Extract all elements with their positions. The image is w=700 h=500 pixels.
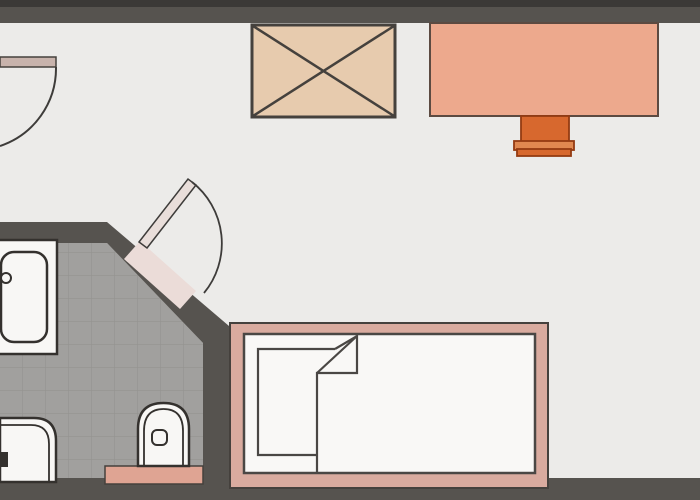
bathroom-bottom-threshold bbox=[105, 466, 203, 484]
entry-door-leaf bbox=[0, 57, 56, 67]
floor-plan bbox=[0, 0, 700, 500]
floor-plan-drawing bbox=[0, 0, 700, 500]
bidet bbox=[0, 418, 56, 482]
bidet-body bbox=[0, 418, 56, 482]
bed bbox=[230, 323, 548, 488]
toilet-flush bbox=[152, 430, 167, 445]
bidet-detail bbox=[0, 452, 8, 467]
sink bbox=[0, 240, 57, 354]
wardrobe bbox=[252, 25, 395, 117]
desk-chair-seat bbox=[521, 116, 569, 143]
toilet bbox=[138, 403, 189, 466]
bed-mattress bbox=[244, 334, 535, 473]
desk-chair-base bbox=[517, 149, 571, 156]
desk bbox=[430, 23, 658, 116]
sink-basin bbox=[1, 252, 47, 342]
sink-drain bbox=[1, 273, 11, 283]
top-wall-shadow bbox=[0, 0, 700, 7]
